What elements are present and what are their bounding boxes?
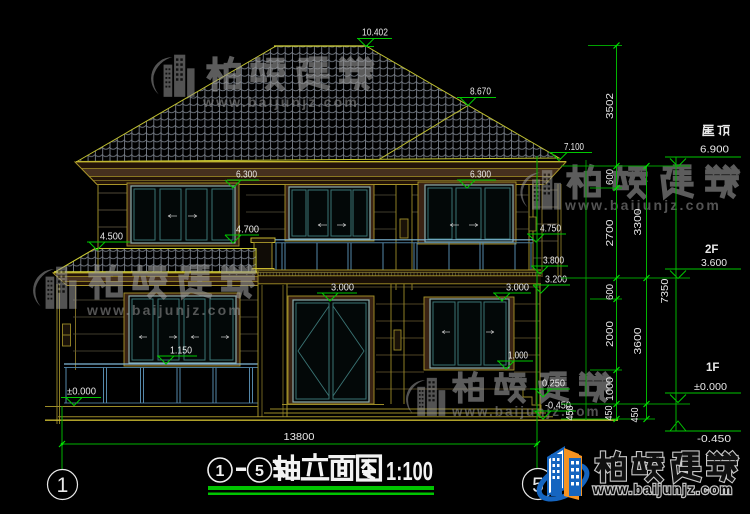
svg-text:3.200: 3.200 [545,275,567,286]
svg-text:1:100: 1:100 [386,456,433,486]
svg-text:1: 1 [216,463,225,480]
svg-text:www.baijunjz.com: www.baijunjz.com [451,404,601,419]
svg-text:6.300: 6.300 [236,170,257,181]
svg-text:1.000: 1.000 [508,351,528,362]
svg-text:3.800: 3.800 [543,256,564,267]
svg-text:450: 450 [565,405,576,420]
svg-text:7.100: 7.100 [564,142,584,153]
svg-text:6.300: 6.300 [470,170,491,181]
svg-text:6.900: 6.900 [700,144,729,156]
svg-text:3300: 3300 [633,208,644,236]
svg-text:13800: 13800 [284,431,315,443]
svg-text:8.670: 8.670 [470,87,491,98]
svg-text:450: 450 [630,407,641,422]
svg-text:1F: 1F [706,362,719,374]
svg-text:4.750: 4.750 [540,224,561,235]
svg-text:3.000: 3.000 [331,283,354,294]
svg-text:600: 600 [605,284,616,300]
svg-text:1000: 1000 [605,377,616,401]
svg-text:±0.000: ±0.000 [67,387,96,398]
svg-text:3.600: 3.600 [701,257,727,269]
svg-text:3502: 3502 [605,92,616,119]
svg-text:4.500: 4.500 [100,232,123,243]
svg-text:2700: 2700 [605,219,616,247]
svg-text:www.baijunjz.com: www.baijunjz.com [202,94,359,110]
svg-text:7350: 7350 [660,278,671,303]
svg-text:450: 450 [604,405,615,420]
svg-text:2000: 2000 [605,320,616,347]
svg-text:1.150: 1.150 [170,346,192,357]
svg-text:600: 600 [605,169,616,185]
svg-text:4.700: 4.700 [236,225,259,236]
svg-text:www.baijunjz.com: www.baijunjz.com [592,482,733,497]
svg-text:-0.450: -0.450 [697,433,731,445]
svg-text:3600: 3600 [633,327,644,355]
svg-text:10.402: 10.402 [362,28,388,39]
svg-text:2F: 2F [705,244,718,256]
svg-text:3.000: 3.000 [506,283,529,294]
svg-text:±0.000: ±0.000 [694,381,727,393]
svg-text:0.250: 0.250 [542,379,565,390]
svg-text:5: 5 [255,463,264,480]
svg-text:www.baijunjz.com: www.baijunjz.com [86,302,243,318]
svg-text:1: 1 [57,474,69,497]
